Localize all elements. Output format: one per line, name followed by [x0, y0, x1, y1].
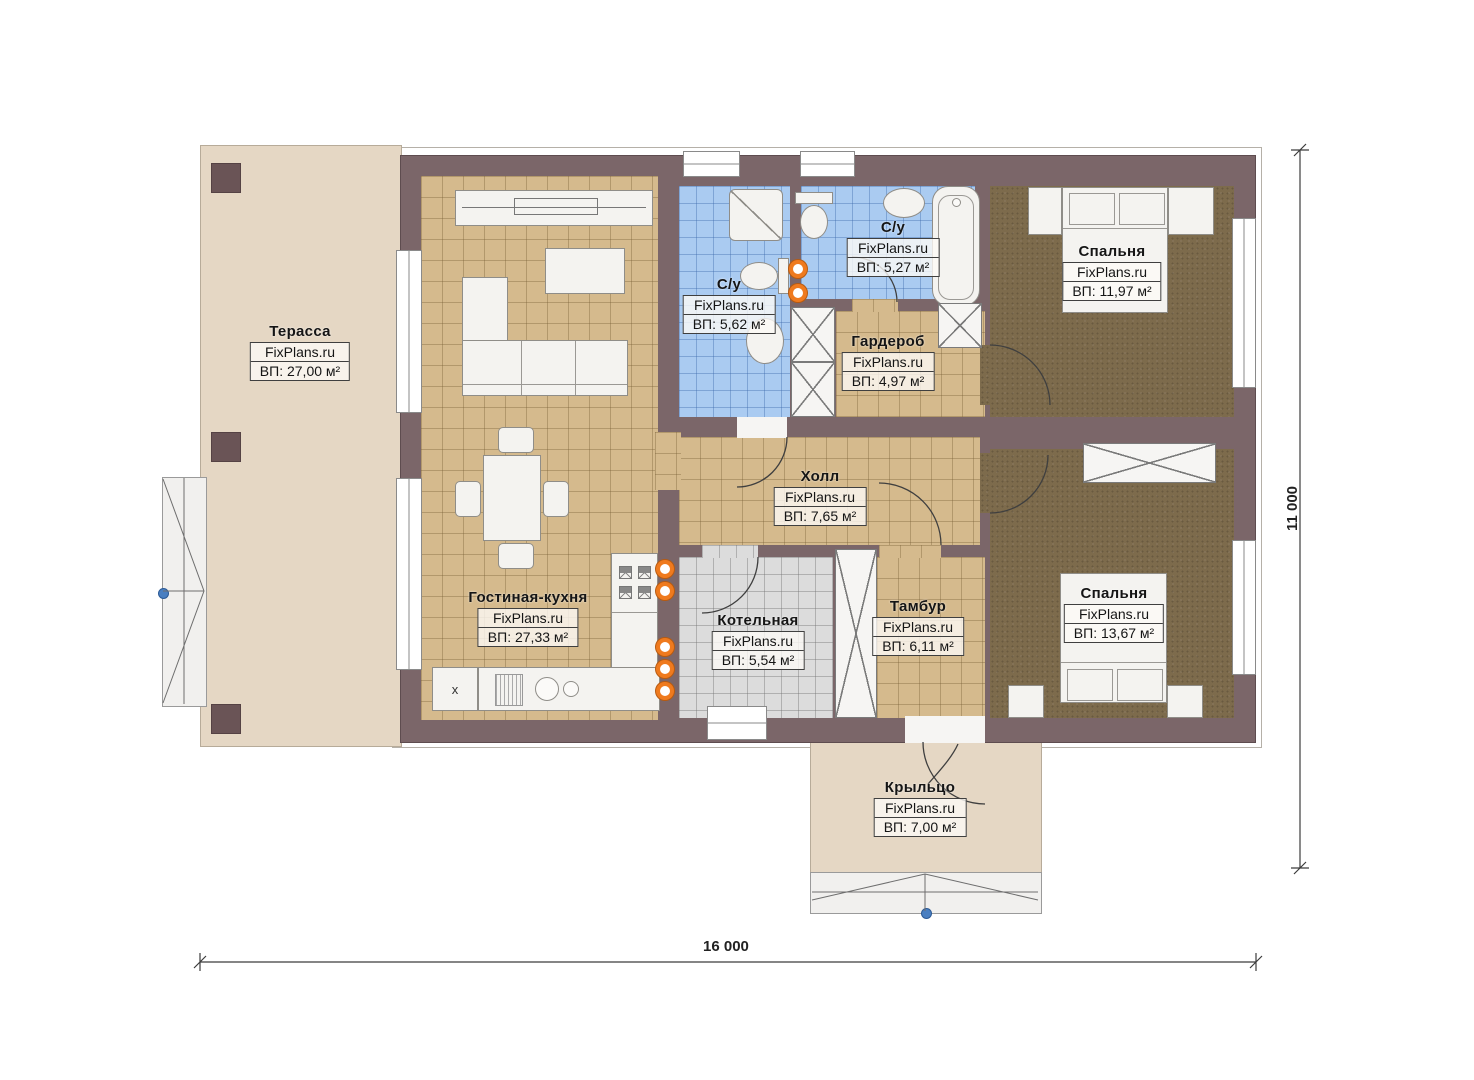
radiator-knob: [656, 582, 674, 600]
room-area: ВП: 4,97 м²: [843, 371, 934, 390]
toilet-tank: [795, 192, 833, 204]
room-label-bath2: С/у FixPlans.ru ВП: 5,27 м²: [847, 219, 940, 277]
closet: [938, 303, 982, 348]
nightstand: [1028, 187, 1062, 235]
sofa-cushion-line: [575, 341, 576, 395]
blanket-line: [1063, 228, 1167, 229]
sofa-back-line: [463, 384, 627, 385]
dimension-line-width: [194, 953, 1262, 971]
room-label-vestibule: Тамбур FixPlans.ru ВП: 6,11 м²: [872, 598, 964, 656]
door-opening-living-hall: [655, 432, 681, 490]
door-opening-bath2-wardrobe: [852, 299, 898, 312]
room-area: ВП: 27,00 м²: [251, 361, 349, 380]
door-opening-entrance: [905, 716, 985, 743]
room-area: ВП: 5,27 м²: [848, 257, 939, 276]
window-bath1: [683, 151, 740, 177]
room-label-bath1: С/у FixPlans.ru ВП: 5,62 м²: [683, 276, 776, 334]
room-area: ВП: 11,97 м²: [1063, 281, 1160, 300]
terrace-column: [211, 704, 241, 734]
watermark: FixPlans.ru: [843, 353, 934, 371]
room-area: ВП: 27,33 м²: [479, 627, 577, 646]
toilet-tank: [778, 258, 789, 294]
room-area: ВП: 13,67 м²: [1065, 623, 1163, 642]
radiator-knob: [789, 284, 807, 302]
door-living-terrace: [396, 478, 422, 670]
blanket-line: [1061, 662, 1166, 663]
pillow: [1067, 669, 1113, 701]
kitchen-appliance-box: х: [432, 667, 478, 711]
window-boiler: [707, 706, 767, 740]
watermark: FixPlans.ru: [713, 632, 804, 650]
shower-cabin: [729, 189, 783, 241]
window-bedroom2: [1232, 540, 1256, 675]
room-name: Крыльцо: [874, 779, 967, 796]
radiator-knob: [656, 660, 674, 678]
sofa-seat: [462, 340, 628, 396]
survey-marker: [158, 588, 169, 599]
closet: [791, 307, 835, 362]
appliance-marker: х: [452, 682, 459, 697]
dimension-width-label: 16 000: [703, 938, 749, 955]
room-name: Гардероб: [842, 333, 935, 350]
closet: [835, 549, 877, 718]
stove-burner: [638, 566, 651, 579]
bathroom-sink: [883, 188, 925, 218]
pillow: [1117, 669, 1163, 701]
closet: [791, 362, 835, 417]
kitchen-stove-column: [611, 553, 658, 668]
room-area: ВП: 6,11 м²: [873, 636, 963, 655]
pillow: [1069, 193, 1115, 225]
tv-line: [462, 207, 646, 208]
room-name: Гостиная-кухня: [468, 589, 587, 606]
dining-chair: [543, 481, 569, 517]
window-bath2: [800, 151, 855, 177]
terrace-column: [211, 432, 241, 462]
dining-table: [483, 455, 541, 541]
door-opening-bath1: [737, 417, 787, 438]
room-name: Спальня: [1064, 585, 1164, 602]
toilet-bowl: [800, 205, 828, 239]
room-name: С/у: [847, 219, 940, 236]
wardrobe-cabinet: [1083, 443, 1216, 483]
room-area: ВП: 7,00 м²: [875, 817, 966, 836]
room-area: ВП: 5,62 м²: [684, 314, 775, 333]
watermark: FixPlans.ru: [1065, 605, 1163, 623]
room-name: Тамбур: [872, 598, 964, 615]
room-name: Холл: [774, 468, 867, 485]
dish-rack: [495, 674, 523, 706]
kitchen-sink-bowl-small: [563, 681, 579, 697]
room-name: Спальня: [1062, 243, 1161, 260]
room-label-hall: Холл FixPlans.ru ВП: 7,65 м²: [774, 468, 867, 526]
watermark: FixPlans.ru: [684, 296, 775, 314]
oven-line: [612, 612, 657, 613]
watermark: FixPlans.ru: [875, 799, 966, 817]
room-label-porch: Крыльцо FixPlans.ru ВП: 7,00 м²: [874, 779, 967, 837]
stove-burner: [619, 586, 632, 599]
window-living-terrace-top: [396, 250, 422, 413]
stove-burner: [619, 566, 632, 579]
watermark: FixPlans.ru: [775, 488, 866, 506]
room-label-bedroom1: Спальня FixPlans.ru ВП: 11,97 м²: [1062, 243, 1161, 301]
watermark: FixPlans.ru: [873, 618, 963, 636]
survey-marker: [921, 908, 932, 919]
dining-chair: [455, 481, 481, 517]
radiator-knob: [656, 560, 674, 578]
door-opening-bedroom2: [980, 453, 990, 513]
door-opening-bedroom1: [980, 345, 990, 405]
tv-cabinet: [455, 190, 653, 226]
watermark: FixPlans.ru: [479, 609, 577, 627]
radiator-knob: [656, 682, 674, 700]
room-label-boiler: Котельная FixPlans.ru ВП: 5,54 м²: [712, 612, 805, 670]
sofa-cushion-line: [521, 341, 522, 395]
watermark: FixPlans.ru: [251, 343, 349, 361]
radiator-knob: [789, 260, 807, 278]
kitchen-counter: [478, 667, 660, 711]
room-area: ВП: 5,54 м²: [713, 650, 804, 669]
room-name: С/у: [683, 276, 776, 293]
stove-burner: [638, 586, 651, 599]
room-name: Котельная: [712, 612, 805, 629]
pillow: [1119, 193, 1165, 225]
door-opening-vestibule-hall: [879, 545, 941, 558]
room-area: ВП: 7,65 м²: [775, 506, 866, 525]
coffee-table: [545, 248, 625, 294]
floor-plan: х: [0, 0, 1474, 1080]
terrace-column: [211, 163, 241, 193]
radiator-knob: [656, 638, 674, 656]
kitchen-sink-bowl: [535, 677, 559, 701]
watermark: FixPlans.ru: [848, 239, 939, 257]
bathtub-drain: [952, 198, 961, 207]
room-label-living: Гостиная-кухня FixPlans.ru ВП: 27,33 м²: [468, 589, 587, 647]
room-label-bedroom2: Спальня FixPlans.ru ВП: 13,67 м²: [1064, 585, 1164, 643]
door-opening-boiler: [702, 545, 758, 558]
dimension-height-label: 11 000: [1284, 486, 1301, 531]
watermark: FixPlans.ru: [1063, 263, 1160, 281]
bathtub-inner: [938, 195, 974, 300]
nightstand: [1168, 187, 1214, 235]
dining-chair: [498, 543, 534, 569]
dining-chair: [498, 427, 534, 453]
window-bedroom1: [1232, 218, 1256, 388]
room-label-terrace: Терасса FixPlans.ru ВП: 27,00 м²: [250, 323, 350, 381]
nightstand: [1167, 685, 1203, 718]
nightstand: [1008, 685, 1044, 718]
room-name: Терасса: [250, 323, 350, 340]
room-label-wardrobe: Гардероб FixPlans.ru ВП: 4,97 м²: [842, 333, 935, 391]
